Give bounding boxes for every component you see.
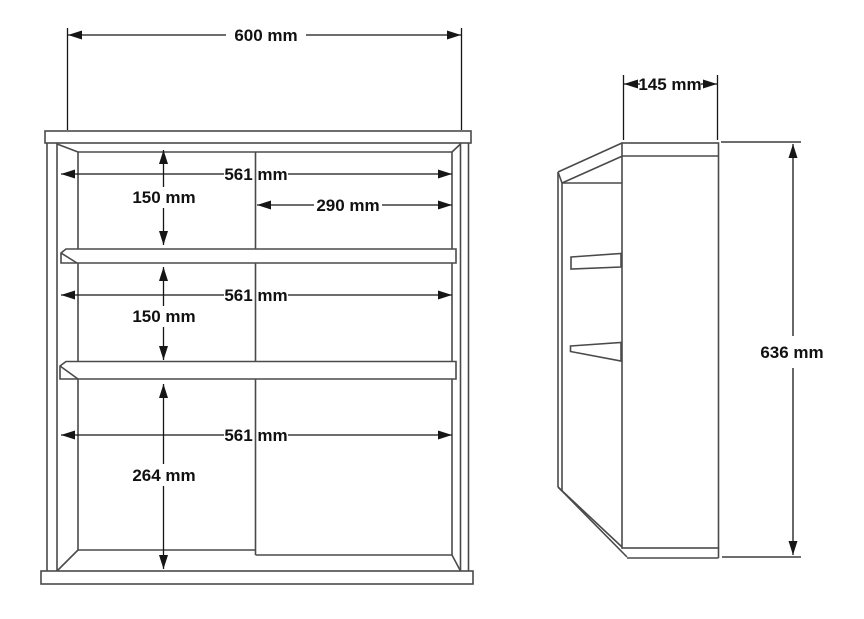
side-panel-face <box>622 143 719 548</box>
arrowhead-right-icon <box>447 31 461 40</box>
dimension-interior-width-middle: 561 mm <box>61 286 452 305</box>
shelf-lower <box>60 362 456 380</box>
dimension-overall-width: 600 mm <box>68 26 462 130</box>
cabinet-dimension-diagram: 600 mm 561 mm 290 mm <box>0 0 864 619</box>
dimension-bottom-section-height: 264 mm <box>132 384 195 569</box>
dimension-interior-width-bottom: 561 mm <box>61 426 452 445</box>
overall-width-label: 600 mm <box>234 26 297 45</box>
shelf-upper-side <box>571 254 621 270</box>
bottom-plinth <box>41 571 473 584</box>
shelf-upper <box>61 249 456 263</box>
dimension-door-width: 290 mm <box>257 196 452 215</box>
shelf-lower-side <box>571 343 622 362</box>
dimension-middle-section-height: 150 mm <box>132 267 195 360</box>
technical-drawing-page: 600 mm 561 mm 290 mm <box>0 0 864 619</box>
depth-label: 145 mm <box>638 75 701 94</box>
door-width-label: 290 mm <box>316 196 379 215</box>
side-view-shelves <box>571 254 622 362</box>
front-view: 600 mm 561 mm 290 mm <box>41 26 473 584</box>
interior-width-bottom-label: 561 mm <box>224 426 287 445</box>
middle-section-height-label: 150 mm <box>132 307 195 326</box>
front-view-cabinet-outline <box>41 131 473 584</box>
bottom-section-height-label: 264 mm <box>132 466 195 485</box>
interior-width-middle-label: 561 mm <box>224 286 287 305</box>
interior-width-top-label: 561 mm <box>224 165 287 184</box>
dimension-depth: 145 mm <box>624 75 718 140</box>
front-view-shelves <box>60 249 456 379</box>
side-view: 145 mm 636 mm <box>558 75 824 558</box>
top-section-height-label: 150 mm <box>132 188 195 207</box>
overall-height-label: 636 mm <box>760 343 823 362</box>
dimension-overall-height: 636 mm <box>721 142 824 557</box>
top-panel <box>45 131 471 143</box>
dimension-interior-width-top: 561 mm <box>61 165 452 184</box>
arrowhead-left-icon <box>68 31 82 40</box>
dimension-top-section-height: 150 mm <box>132 150 195 245</box>
